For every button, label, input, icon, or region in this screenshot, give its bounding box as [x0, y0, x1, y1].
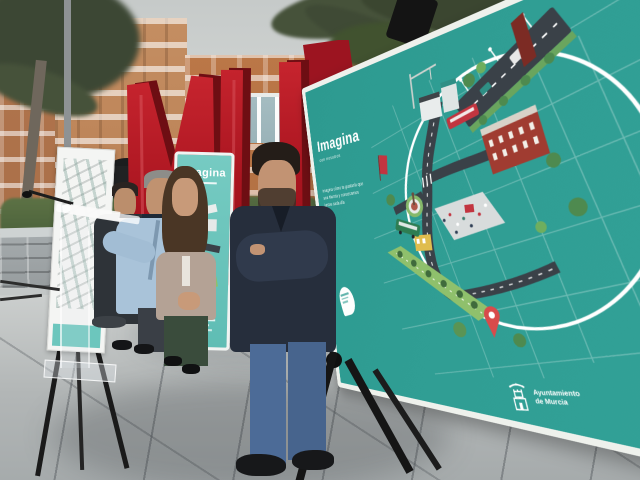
person-d-face [172, 178, 198, 216]
microphone-capsule [22, 191, 32, 198]
logo-line-2: de Murcia [535, 398, 584, 409]
person-c-jeans [250, 344, 286, 464]
person-c-shoe [236, 454, 286, 476]
person-c-shoe [292, 450, 334, 470]
flag-icon [377, 153, 389, 180]
podium-column [60, 220, 90, 368]
person-c [228, 142, 338, 480]
park-icon [387, 241, 495, 322]
person-c-jeans [288, 342, 326, 460]
person-d [156, 164, 218, 378]
person-c-hand [250, 244, 265, 255]
bubble-text-bar [342, 300, 348, 303]
plaza-icon [433, 189, 507, 241]
person-c-crossed-arms [234, 229, 329, 283]
press-event-photo: M U R imagina [0, 0, 640, 480]
person-d-shoes [182, 364, 200, 374]
person-d-shoes [164, 356, 182, 366]
person-b-shoes [134, 344, 154, 354]
person-d-hands [178, 292, 200, 310]
murcia-logo: Ayuntamiento de Murcia [506, 382, 586, 416]
person-d-shirt [182, 256, 190, 286]
person-b-shoes [112, 340, 132, 350]
